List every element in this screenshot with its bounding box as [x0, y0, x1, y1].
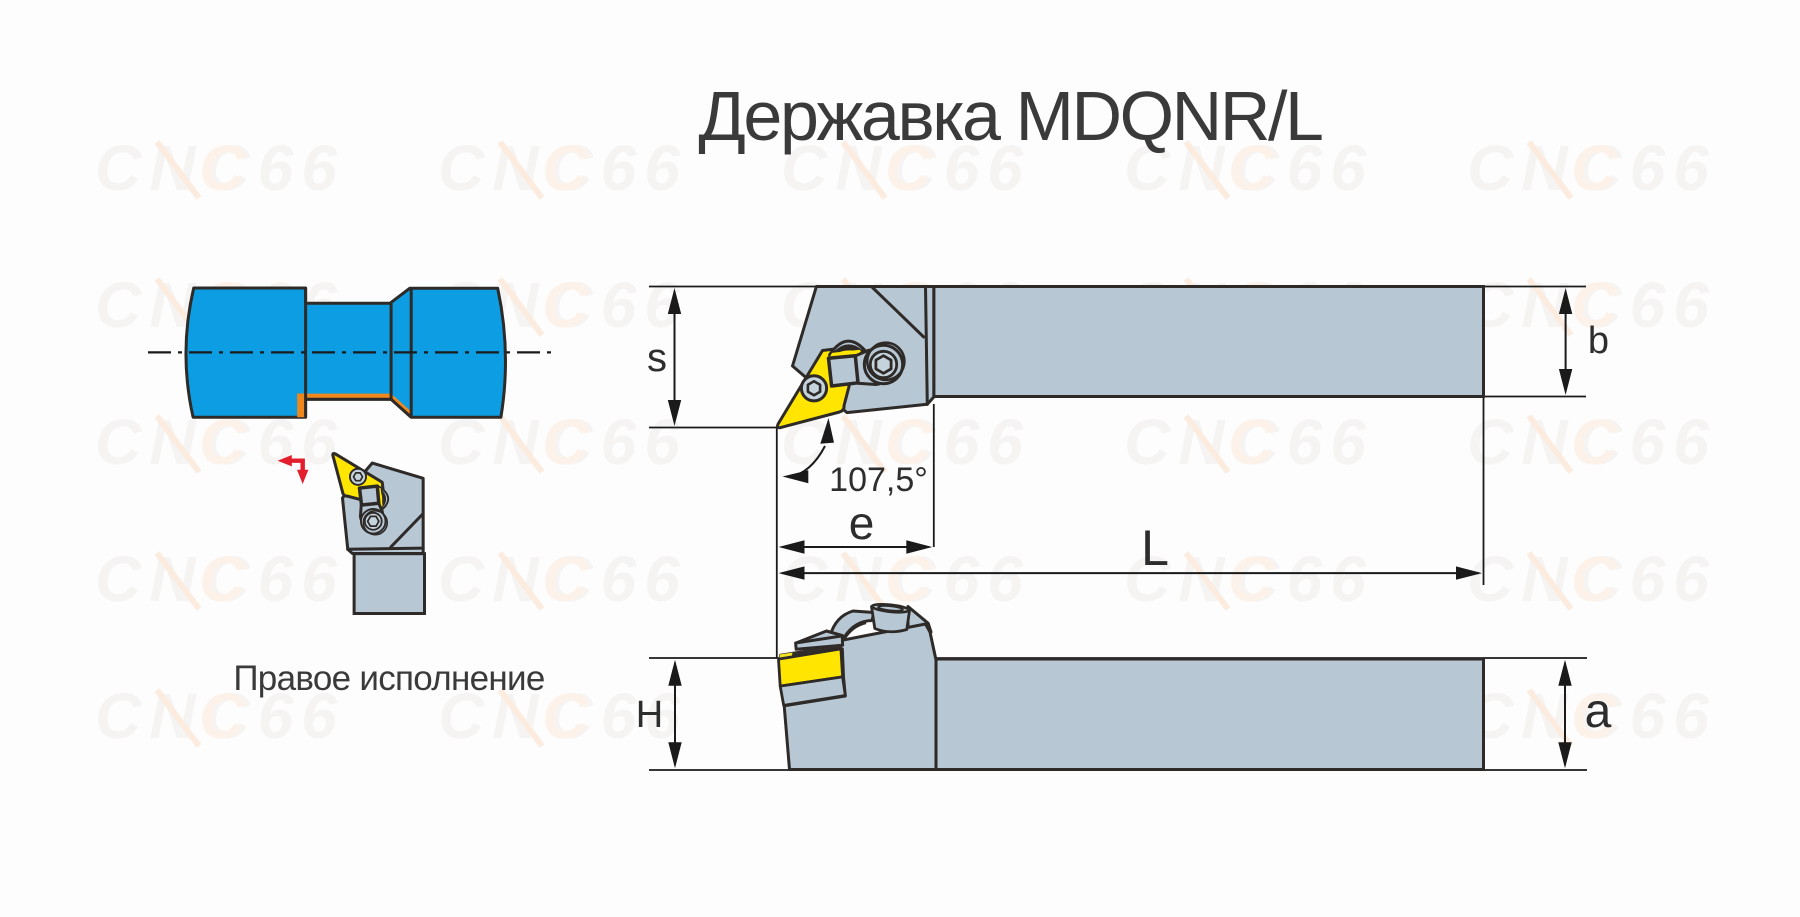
svg-text:H: H	[636, 694, 663, 736]
svg-text:s: s	[647, 336, 667, 380]
svg-text:107,5°: 107,5°	[829, 461, 928, 499]
svg-text:e: e	[849, 497, 875, 549]
svg-text:Державка MDQNR/L: Державка MDQNR/L	[698, 77, 1322, 155]
svg-text:b: b	[1588, 320, 1609, 362]
svg-text:a: a	[1585, 685, 1612, 738]
svg-text:L: L	[1141, 520, 1169, 576]
svg-text:Правое исполнение: Правое исполнение	[233, 659, 544, 698]
